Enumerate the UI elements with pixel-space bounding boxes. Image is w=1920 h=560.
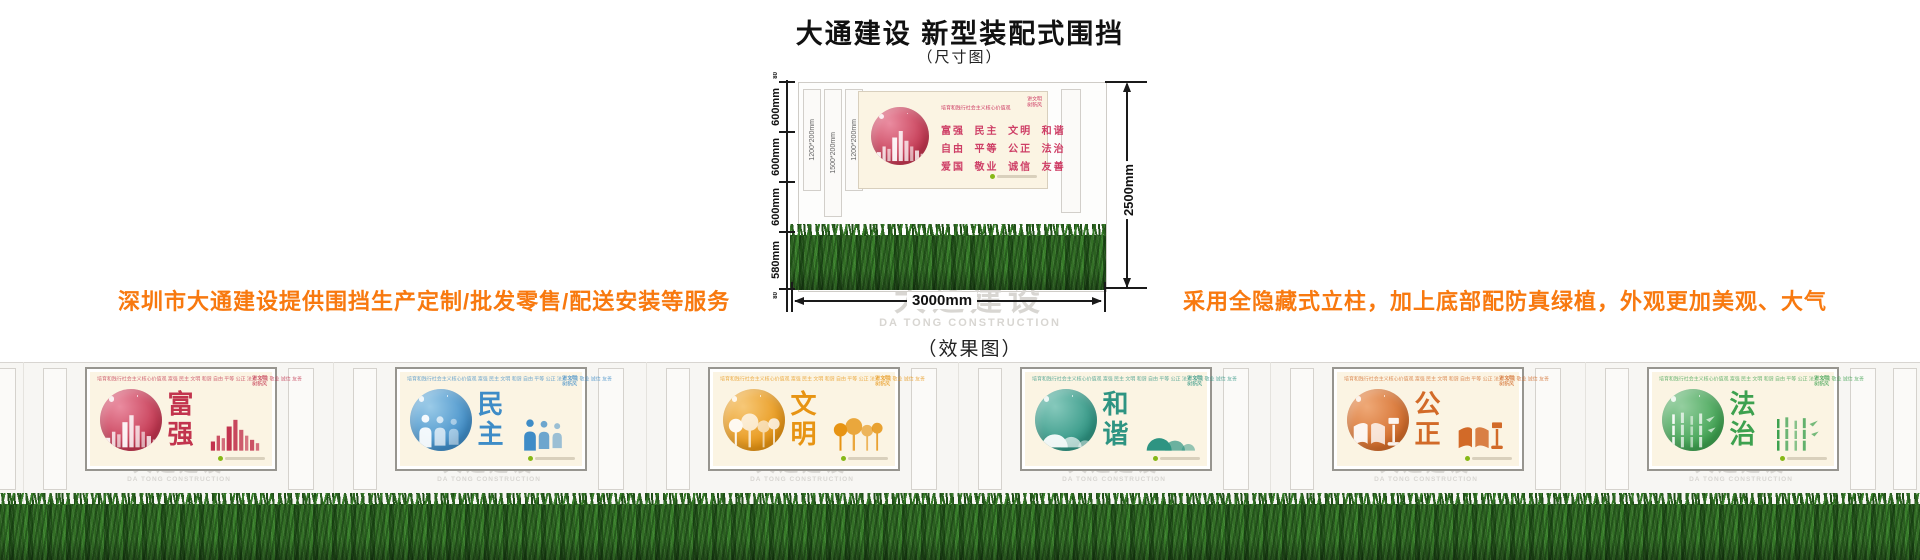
value-label: 和谐 <box>1101 390 1127 450</box>
mountains-icon <box>1145 416 1195 452</box>
dim-label-600: 600mm <box>763 82 789 131</box>
value-label: 公正 <box>1413 390 1439 450</box>
slogan-text: 培育和践行社会主义核心价值观 <box>941 105 1003 111</box>
wall-joint <box>23 362 24 510</box>
civility-badge: 讲文明 树新风 <box>1018 96 1042 116</box>
wall-joint <box>1270 362 1271 510</box>
diagram-grass-hedge <box>790 235 1106 290</box>
value-label: 民主 <box>476 390 502 450</box>
people-icon <box>520 416 570 452</box>
civility-badge: 讲文明树新风 <box>1805 375 1829 395</box>
dim-bracket-left <box>791 282 793 312</box>
fence-post <box>1535 368 1561 490</box>
fence-post <box>1893 368 1917 490</box>
micro-caption <box>1153 456 1200 461</box>
dim-label-600: 600mm <box>763 182 789 231</box>
arrow-left-icon <box>794 297 804 305</box>
wall-joint <box>646 362 647 510</box>
book-gavel-icon <box>1352 412 1404 448</box>
dim-label-80-top: 80 <box>763 70 789 81</box>
hidden-post: 1500*200mm <box>824 89 842 217</box>
papercut-circle-art <box>723 389 785 451</box>
effect-view-caption: （效果图） <box>755 334 1185 361</box>
dimension-diagram: 1200*200mm 1500*200mm 1200*200mm 培育和践行社会… <box>755 70 1185 370</box>
papercut-circle-art <box>410 389 472 451</box>
micro-caption <box>841 456 888 461</box>
micro-caption <box>1465 456 1512 461</box>
values-row: 富强 民主 文明 和谐 <box>941 123 1041 141</box>
trees-icon <box>728 412 780 448</box>
wall-joint <box>1585 362 1586 510</box>
papercut-circle-art <box>100 389 162 451</box>
civility-badge: 讲文明树新风 <box>1178 375 1202 395</box>
fence-post <box>353 368 377 490</box>
value-label: 文明 <box>789 390 815 450</box>
value-board-wenming: 培育和践行社会主义核心价值观 富强 民主 文明 和谐 自由 平等 公正 法治 爱… <box>708 367 900 471</box>
slogan-text: 培育和践行社会主义核心价值观 富强 民主 文明 和谐 自由 平等 公正 法治 爱… <box>1344 376 1549 382</box>
arrow-down-icon <box>1123 278 1131 288</box>
effect-view: 大通建设DA TONG CONSTRUCTION 培育和践行社会主义核心价值观 … <box>0 362 1920 560</box>
value-board-minzhu: 培育和践行社会主义核心价值观 富强 民主 文明 和谐 自由 平等 公正 法治 爱… <box>395 367 587 471</box>
trees-icon <box>833 416 883 452</box>
slogan-text: 培育和践行社会主义核心价值观 富强 民主 文明 和谐 自由 平等 公正 法治 爱… <box>1032 376 1237 382</box>
slogan-text: 培育和践行社会主义核心价值观 富强 民主 文明 和谐 自由 平等 公正 法治 爱… <box>97 376 302 382</box>
bamboo-icon <box>1772 416 1822 452</box>
micro-caption <box>990 174 1037 179</box>
fence-post <box>1290 368 1314 490</box>
promo-text-right: 采用全隐藏式立柱，加上底部配防真绿植，外观更加美观、大气 <box>1183 284 1827 316</box>
arrow-up-icon <box>1123 82 1131 92</box>
green-dot-icon <box>218 456 223 461</box>
poster-canvas: 大通建设 新型装配式围挡 （尺寸图） 深圳市大通建设提供围挡生产定制/批发零售/… <box>0 0 1920 560</box>
people-icon <box>415 412 467 448</box>
micro-caption <box>1780 456 1827 461</box>
dim-label-80-bottom: 80 <box>763 289 789 301</box>
wall-joint <box>958 362 959 510</box>
slogan-text: 培育和践行社会主义核心价值观 富强 民主 文明 和谐 自由 平等 公正 法治 爱… <box>1659 376 1864 382</box>
core-values-board: 培育和践行社会主义核心价值观 富强 民主 文明 和谐 自由 平等 公正 法治 爱… <box>858 91 1048 189</box>
skyline-icon <box>210 416 260 452</box>
grass-hedge <box>0 504 1920 560</box>
green-dot-icon <box>1465 456 1470 461</box>
micro-caption <box>218 456 265 461</box>
slogan-text: 培育和践行社会主义核心价值观 富强 民主 文明 和谐 自由 平等 公正 法治 爱… <box>720 376 925 382</box>
value-label: 富强 <box>166 390 192 450</box>
dim-label-2500: 2500mm <box>1115 152 1141 228</box>
skyline-icon <box>876 128 925 162</box>
fence-post <box>0 368 16 490</box>
papercut-circle-art <box>1662 389 1724 451</box>
papercut-circle-art <box>1035 389 1097 451</box>
bamboo-icon <box>1667 412 1719 448</box>
slogan-text: 培育和践行社会主义核心价值观 富强 民主 文明 和谐 自由 平等 公正 法治 爱… <box>407 376 612 382</box>
fence-post <box>1605 368 1629 490</box>
fence-post <box>1850 368 1876 490</box>
civility-badge: 讲文明树新风 <box>1490 375 1514 395</box>
value-board-fazhi: 培育和践行社会主义核心价值观 富强 民主 文明 和谐 自由 平等 公正 法治 爱… <box>1647 367 1839 471</box>
fence-post <box>666 368 690 490</box>
civility-badge: 讲文明树新风 <box>866 375 890 395</box>
green-dot-icon <box>528 456 533 461</box>
fence-post <box>288 368 314 490</box>
papercut-circle-art <box>1347 389 1409 451</box>
green-dot-icon <box>1153 456 1158 461</box>
hidden-post: 1200*200mm <box>803 89 821 191</box>
arrow-right-icon <box>1092 297 1102 305</box>
value-board-gongzheng: 培育和践行社会主义核心价值观 富强 民主 文明 和谐 自由 平等 公正 法治 爱… <box>1332 367 1524 471</box>
micro-caption <box>528 456 575 461</box>
green-dot-icon <box>1780 456 1785 461</box>
mountains-icon <box>1040 412 1092 448</box>
fence-post <box>43 368 67 490</box>
fence-post <box>598 368 624 490</box>
book-gavel-icon <box>1457 416 1507 452</box>
promo-text-left: 深圳市大通建设提供围挡生产定制/批发零售/配送安装等服务 <box>118 284 730 316</box>
fence-post <box>911 368 937 490</box>
values-row: 自由 平等 公正 法治 <box>941 141 1041 159</box>
civility-badge: 讲文明树新风 <box>553 375 577 395</box>
dim-bracket-right <box>1104 282 1106 312</box>
papercut-circle-art <box>871 107 929 165</box>
value-label: 法治 <box>1728 390 1754 450</box>
skyline-icon <box>105 412 157 448</box>
civility-badge: 讲文明树新风 <box>243 375 267 395</box>
dim-label-580: 580mm <box>763 232 789 288</box>
green-dot-icon <box>990 174 995 179</box>
value-board-fuqiang: 培育和践行社会主义核心价值观 富强 民主 文明 和谐 自由 平等 公正 法治 爱… <box>85 367 277 471</box>
value-board-hexie: 培育和践行社会主义核心价值观 富强 民主 文明 和谐 自由 平等 公正 法治 爱… <box>1020 367 1212 471</box>
fence-post <box>1223 368 1249 490</box>
wall-joint <box>333 362 334 510</box>
dim-label-3000: 3000mm <box>907 292 977 309</box>
green-dot-icon <box>841 456 846 461</box>
fence-post <box>978 368 1002 490</box>
dim-label-600: 600mm <box>763 132 789 181</box>
size-diagram-caption: （尺寸图） <box>0 46 1920 67</box>
